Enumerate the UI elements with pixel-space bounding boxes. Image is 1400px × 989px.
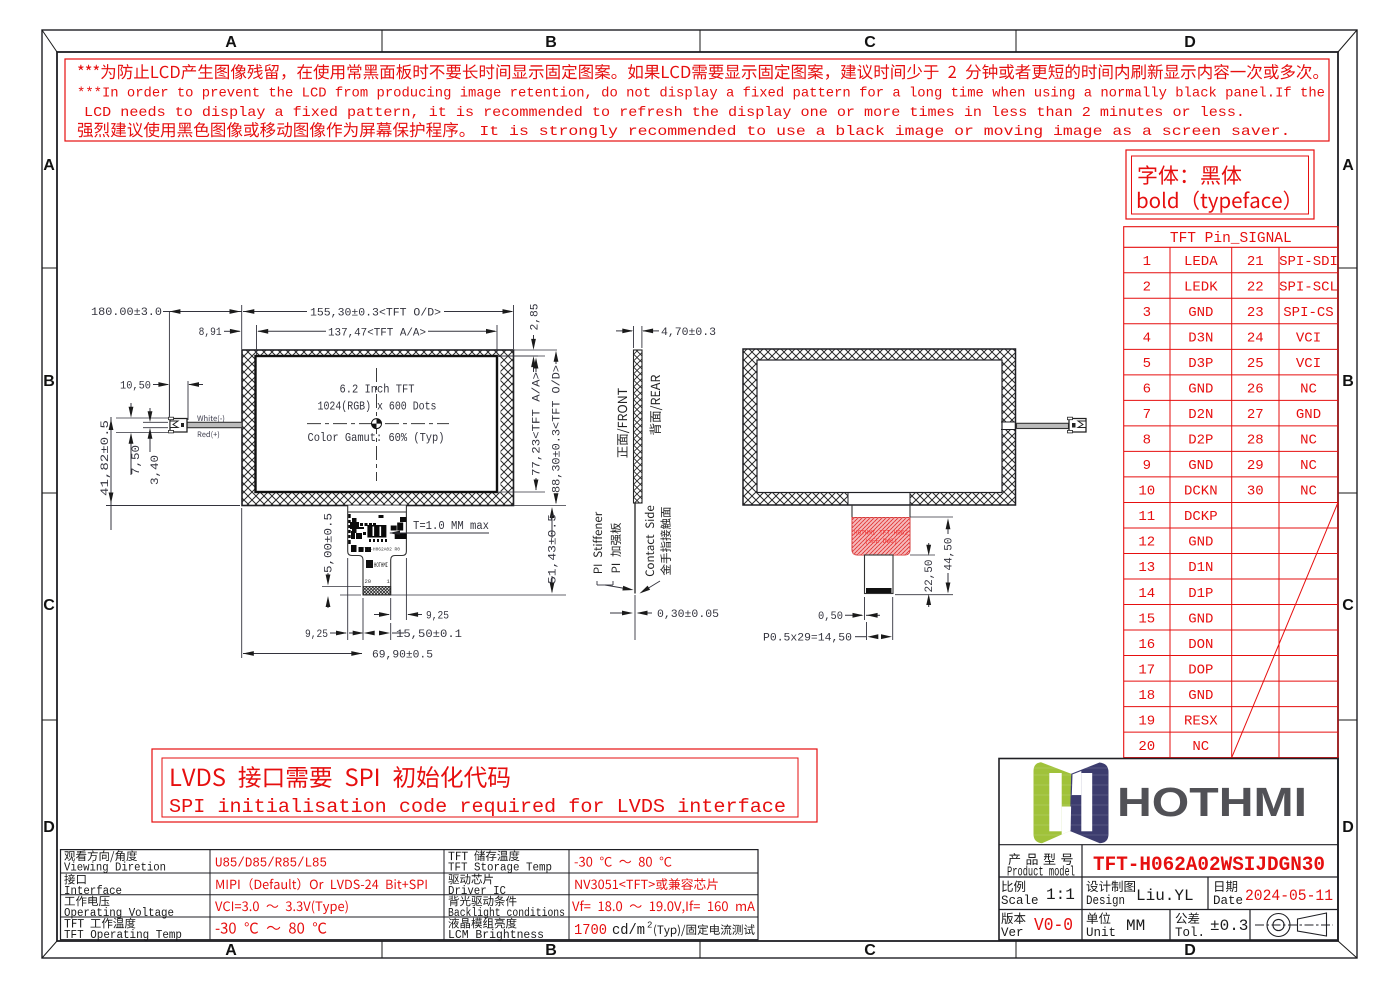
svg-text:GND: GND [1188,535,1213,551]
svg-text:29: 29 [1247,458,1264,474]
svg-text:Driver IC: Driver IC [448,885,506,898]
svg-text:4: 4 [1143,331,1151,347]
svg-text:28: 28 [1247,433,1264,449]
svg-text:C: C [1342,597,1354,614]
svg-text:TFT Pin_SIGNAL: TFT Pin_SIGNAL [1170,231,1292,247]
svg-text:GND: GND [1188,458,1213,474]
svg-text:51,43±0.5: 51,43±0.5 [548,514,560,584]
svg-text:30: 30 [1247,484,1264,500]
svg-text:8,91: 8,91 [199,327,222,339]
svg-text:88,30±0.3<TFT O/D>: 88,30±0.3<TFT O/D> [552,365,564,493]
svg-text:LCD needs to display a fixed p: LCD needs to display a fixed pattern, it… [84,105,1245,121]
svg-text:D: D [1184,942,1196,959]
svg-text:4,70±0.3: 4,70±0.3 [661,327,716,339]
svg-text:77,23<TFT A/A>: 77,23<TFT A/A> [532,372,544,476]
svg-text:C: C [864,942,876,959]
svg-text:D: D [1342,819,1354,836]
svg-text:26: 26 [1247,382,1264,398]
svg-text:TFT Storage Temp: TFT Storage Temp [448,862,552,875]
svg-text:Liu.YL: Liu.YL [1136,887,1194,905]
svg-text:SPI initialisation code requir: SPI initialisation code required for LVD… [169,796,786,818]
svg-text:1024(RGB) x 600 Dots: 1024(RGB) x 600 Dots [318,400,437,414]
svg-text:25: 25 [1247,356,1264,372]
svg-text:16: 16 [1138,637,1155,653]
svg-text:12: 12 [1138,535,1155,551]
svg-text:GND: GND [1296,407,1321,423]
svg-text:***In order to prevent the LCD: ***In order to prevent the LCD from prod… [77,86,1325,102]
svg-text:NC: NC [1300,433,1317,449]
svg-text:2: 2 [1143,280,1151,296]
svg-text:DON: DON [1188,637,1213,653]
svg-text:Viewing Diretion: Viewing Diretion [64,862,166,875]
svg-text:HOTHMI: HOTHMI [1117,779,1307,825]
svg-text:SPI-SCL: SPI-SCL [1279,280,1338,296]
svg-text:LCM Brightness: LCM Brightness [448,929,544,942]
svg-text:Tol.: Tol. [1175,926,1205,940]
svg-text:10,50: 10,50 [120,381,151,393]
svg-text:HOTHMI TFT-H062: HOTHMI TFT-H062 [854,530,908,537]
svg-text:22,50: 22,50 [924,560,936,593]
svg-text:Design: Design [1086,894,1125,908]
svg-text:DCKN: DCKN [1184,484,1218,500]
svg-text:2,85: 2,85 [530,304,542,331]
svg-text:A: A [225,34,237,51]
svg-text:D3P: D3P [1188,356,1213,372]
svg-text:SPI-CS: SPI-CS [1283,305,1333,321]
svg-text:11: 11 [1138,509,1155,525]
svg-text:VCI: VCI [1296,331,1321,347]
svg-text:19: 19 [1138,713,1155,729]
svg-text:Operating Voltage: Operating Voltage [64,907,174,920]
svg-text:Scale: Scale [1001,894,1039,908]
svg-text:137,47<TFT A/A>: 137,47<TFT A/A> [328,327,426,339]
svg-text:TFT Operating Temp: TFT Operating Temp [64,929,182,942]
svg-text:A: A [225,942,237,959]
svg-text:1: 1 [1143,254,1151,270]
svg-text:23: 23 [1247,305,1264,321]
svg-text:T=1.0 MM max: T=1.0 MM max [413,520,489,533]
svg-text:10: 10 [1138,484,1155,500]
svg-text:GND: GND [1188,305,1213,321]
svg-text:D1P: D1P [1188,586,1213,602]
svg-text:5: 5 [1143,356,1151,372]
svg-text:P0.5x29=14,50: P0.5x29=14,50 [763,633,852,645]
svg-text:7,50: 7,50 [131,445,143,475]
svg-text:D1N: D1N [1188,560,1213,576]
svg-text:DOP: DOP [1188,662,1213,678]
svg-text:2: 2 [647,921,652,931]
svg-text:15: 15 [1138,611,1155,627]
svg-text:Product model: Product model [1007,866,1075,881]
svg-text:TFT-H062A02 R0: TFT-H062A02 R0 [362,547,400,553]
svg-text:Date: Date [1213,894,1243,908]
svg-text:NC: NC [1192,739,1209,755]
svg-text:5,00±0.5: 5,00±0.5 [323,513,335,573]
svg-text:14: 14 [1138,586,1155,602]
svg-text:7: 7 [1143,407,1151,423]
svg-text:GND: GND [1188,688,1213,704]
svg-text:D2N: D2N [1188,407,1213,423]
svg-text:HOTHMI: HOTHMI [374,562,388,569]
svg-text:A: A [43,157,55,174]
svg-text:180.00±3.0: 180.00±3.0 [91,307,162,319]
svg-text:1:1: 1:1 [1046,886,1075,904]
svg-text:3: 3 [1143,305,1151,321]
svg-text:MM: MM [1126,917,1145,935]
svg-text:Color Gamut: 60% (Typ): Color Gamut: 60% (Typ) [308,431,445,445]
svg-text:U85/D85/R85/L85: U85/D85/R85/L85 [215,856,327,872]
svg-text:1700: 1700 [574,923,607,939]
svg-text:0,30±0.05: 0,30±0.05 [657,609,719,621]
svg-text:3,40: 3,40 [150,455,162,485]
svg-text:20: 20 [1138,739,1155,755]
svg-text:DCKP: DCKP [1184,509,1218,525]
svg-text:D3N: D3N [1188,331,1213,347]
svg-text:69,90±0.5: 69,90±0.5 [372,650,433,662]
svg-text:44,50: 44,50 [943,538,955,571]
svg-text:D2P: D2P [1188,433,1213,449]
svg-text:9,25: 9,25 [426,611,449,623]
svg-text:B: B [545,34,557,51]
svg-text:17: 17 [1138,662,1155,678]
svg-text:LEDK: LEDK [1184,280,1218,296]
svg-text:20: 20 [365,578,372,585]
svg-text:(SEE DWG): (SEE DWG) [865,538,897,545]
svg-text:21: 21 [1247,254,1264,270]
svg-text:V0-0: V0-0 [1034,916,1073,936]
svg-text:Backlight conditions: Backlight conditions [448,907,565,920]
svg-text:VCI: VCI [1296,356,1321,372]
svg-text:NC: NC [1300,458,1317,474]
svg-text:24: 24 [1247,331,1264,347]
svg-text:Ver: Ver [1001,926,1024,940]
svg-text:C: C [864,34,876,51]
svg-text:TFT-H062A02WSIJDGN30: TFT-H062A02WSIJDGN30 [1093,854,1325,877]
svg-text:B: B [545,942,557,959]
svg-text:GND: GND [1188,611,1213,627]
svg-text:D: D [1184,34,1196,51]
svg-text:B: B [1342,373,1354,390]
svg-text:18: 18 [1138,688,1155,704]
svg-text:0,50: 0,50 [818,611,843,623]
svg-text:Unit: Unit [1086,926,1116,940]
svg-text:C: C [43,597,55,614]
svg-text:22: 22 [1247,280,1264,296]
svg-text:15,50±0.1: 15,50±0.1 [396,629,462,641]
svg-text:B: B [43,373,55,390]
svg-text:LEDA: LEDA [1184,254,1218,270]
svg-text:D: D [43,819,55,836]
svg-text:6.2 Inch TFT: 6.2 Inch TFT [340,383,415,397]
svg-text:±0.3: ±0.3 [1210,917,1248,935]
svg-text:SPI-SDI: SPI-SDI [1279,254,1338,270]
svg-text:2024-05-11: 2024-05-11 [1245,887,1333,905]
svg-text:27: 27 [1247,407,1264,423]
svg-text:41,82±0.5: 41,82±0.5 [100,420,112,496]
svg-text:9: 9 [1143,458,1151,474]
svg-text:cd/m: cd/m [612,923,645,939]
svg-text:13: 13 [1138,560,1155,576]
svg-text:NC: NC [1300,484,1317,500]
svg-text:155,30±0.3<TFT O/D>: 155,30±0.3<TFT O/D> [310,308,441,320]
svg-text:A: A [1342,157,1354,174]
svg-text:GND: GND [1188,382,1213,398]
svg-text:It is strongly recommended to: It is strongly recommended to use a blac… [479,124,1290,140]
svg-text:RESX: RESX [1184,713,1218,729]
svg-text:9,25: 9,25 [305,629,328,641]
svg-text:NC: NC [1300,382,1317,398]
svg-text:8: 8 [1143,433,1151,449]
svg-text:6: 6 [1143,382,1151,398]
